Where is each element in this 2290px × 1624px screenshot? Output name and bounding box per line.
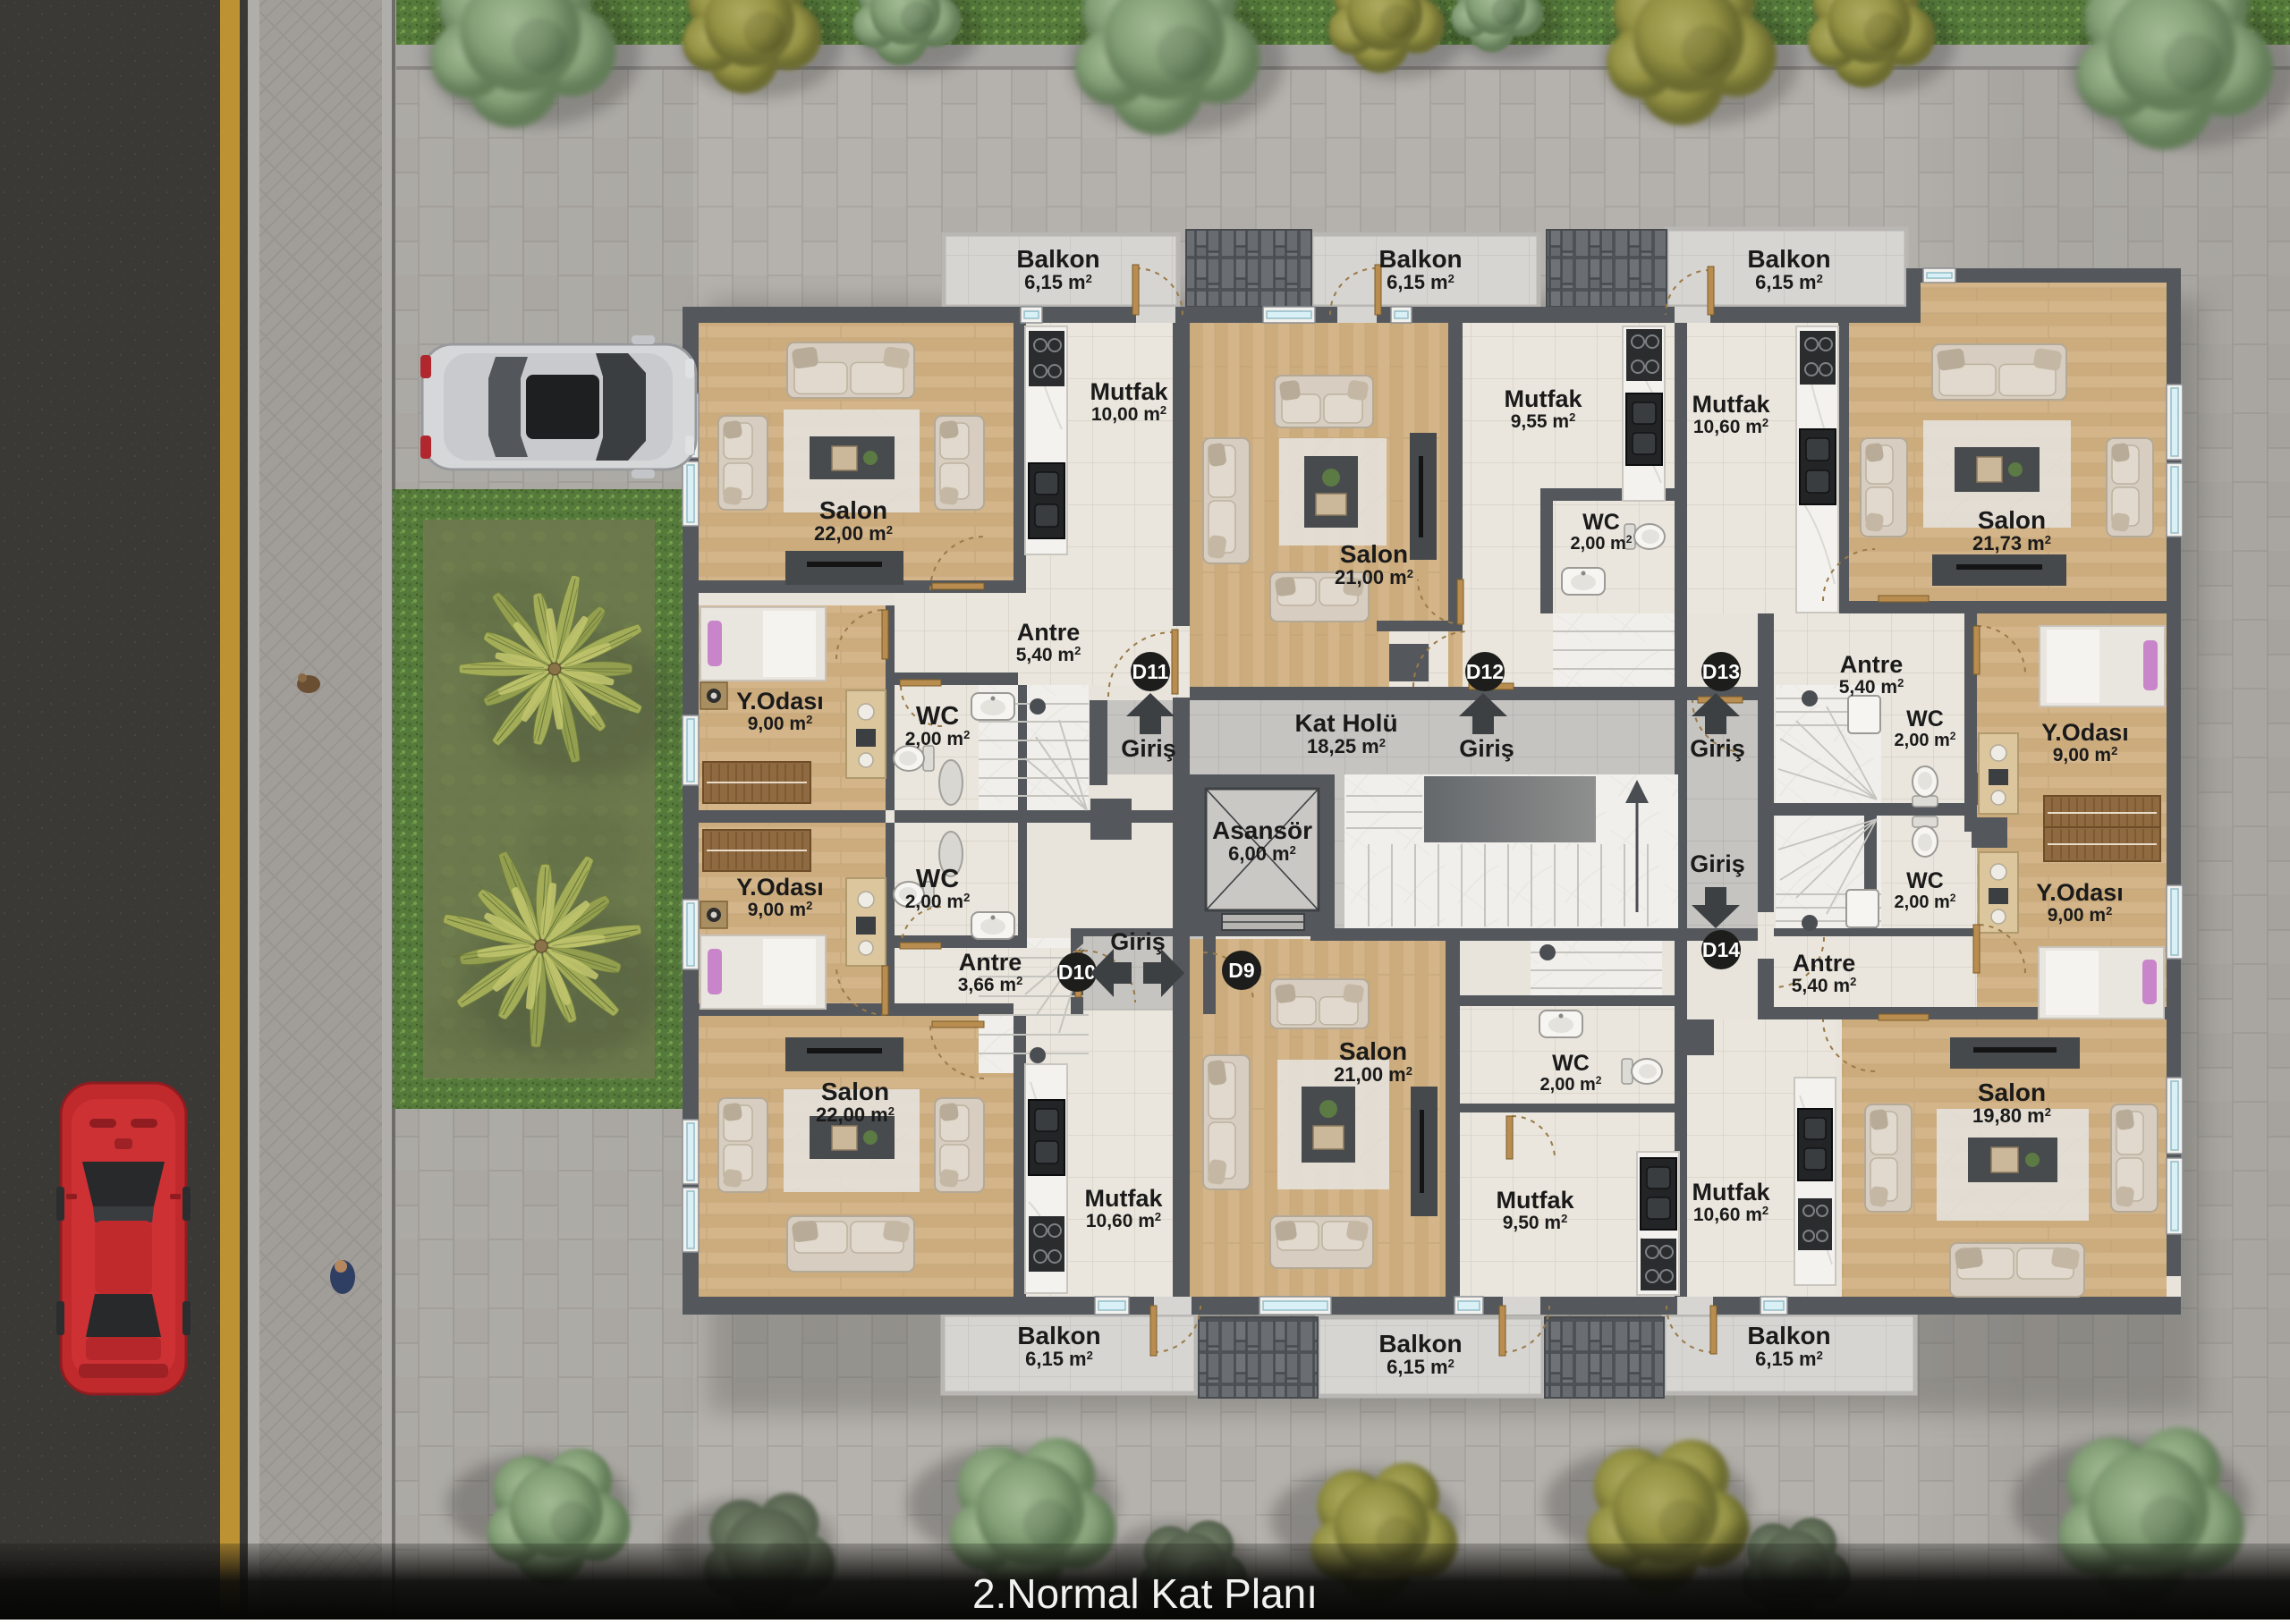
svg-text:21,73 m2: 21,73 m2 [1972,532,2051,554]
svg-text:Mutfak: Mutfak [1085,1185,1164,1212]
svg-text:Giriş: Giriş [1690,735,1745,762]
svg-text:3,66 m2: 3,66 m2 [958,974,1023,995]
svg-text:D10: D10 [1058,960,1096,984]
svg-text:2,00 m2: 2,00 m2 [905,728,971,749]
svg-text:10,00 m2: 10,00 m2 [1091,403,1166,425]
svg-text:Salon: Salon [821,1078,889,1105]
svg-text:Mutfak: Mutfak [1692,1179,1771,1205]
svg-text:Y.Odası: Y.Odası [2041,719,2129,746]
svg-text:Salon: Salon [1978,1078,2046,1106]
svg-text:D9: D9 [1228,959,1254,982]
svg-text:Salon: Salon [1340,540,1408,568]
svg-text:Antre: Antre [1793,950,1856,977]
svg-text:Y.Odası: Y.Odası [736,688,824,715]
svg-text:Balkon: Balkon [1747,245,1830,273]
svg-text:WC: WC [916,702,959,731]
svg-text:9,50 m2: 9,50 m2 [1503,1212,1568,1233]
svg-text:19,80 m2: 19,80 m2 [1972,1104,2051,1127]
svg-text:WC: WC [1906,706,1944,732]
svg-text:Kat Holü: Kat Holü [1294,709,1397,737]
svg-text:Giriş: Giriş [1459,735,1514,762]
svg-text:5,40 m2: 5,40 m2 [1839,676,1904,698]
svg-text:5,40 m2: 5,40 m2 [1792,975,1857,996]
svg-text:Mutfak: Mutfak [1497,1187,1575,1214]
svg-text:2,00 m2: 2,00 m2 [1540,1074,1602,1095]
svg-text:Mutfak: Mutfak [1692,391,1771,418]
svg-text:Salon: Salon [1339,1037,1407,1065]
svg-text:Balkon: Balkon [1017,1322,1100,1349]
svg-text:D14: D14 [1702,938,1740,961]
svg-text:2,00 m2: 2,00 m2 [1895,730,1956,750]
svg-text:2.Normal Kat Planı: 2.Normal Kat Planı [972,1570,1318,1617]
svg-text:9,55 m2: 9,55 m2 [1511,410,1576,432]
svg-text:Balkon: Balkon [1378,245,1462,273]
svg-text:Giriş: Giriş [1690,850,1745,877]
svg-text:9,00 m2: 9,00 m2 [748,713,813,734]
svg-text:5,40 m2: 5,40 m2 [1016,644,1081,665]
svg-text:Balkon: Balkon [1747,1322,1830,1349]
svg-text:Y.Odası: Y.Odası [736,874,824,901]
svg-text:D11: D11 [1132,660,1169,683]
svg-text:21,00 m2: 21,00 m2 [1334,1063,1412,1086]
svg-text:6,00 m2: 6,00 m2 [1228,842,1296,865]
svg-text:Mutfak: Mutfak [1505,385,1583,412]
svg-text:D12: D12 [1466,660,1504,683]
svg-text:WC: WC [916,865,959,893]
svg-text:6,15 m2: 6,15 m2 [1755,271,1823,293]
svg-text:Y.Odası: Y.Odası [2036,879,2124,906]
svg-text:Salon: Salon [1978,506,2046,534]
svg-text:10,60 m2: 10,60 m2 [1693,416,1768,437]
svg-text:21,00 m2: 21,00 m2 [1335,566,1413,588]
svg-text:WC: WC [1906,868,1944,893]
svg-text:6,15 m2: 6,15 m2 [1025,1348,1093,1370]
svg-text:2,00 m2: 2,00 m2 [1895,892,1956,912]
svg-text:9,00 m2: 9,00 m2 [2053,744,2118,765]
svg-text:10,60 m2: 10,60 m2 [1086,1210,1161,1231]
svg-text:Salon: Salon [819,496,887,524]
svg-text:WC: WC [1552,1051,1590,1076]
svg-text:Giriş: Giriş [1121,735,1176,762]
svg-text:2,00 m2: 2,00 m2 [905,891,971,912]
svg-text:6,15 m2: 6,15 m2 [1387,1356,1455,1378]
svg-text:6,15 m2: 6,15 m2 [1387,271,1455,293]
svg-text:Asansör: Asansör [1212,816,1312,844]
svg-text:Balkon: Balkon [1378,1330,1462,1358]
svg-text:9,00 m2: 9,00 m2 [748,899,813,920]
svg-text:10,60 m2: 10,60 m2 [1693,1204,1768,1225]
svg-text:Mutfak: Mutfak [1090,378,1169,405]
svg-text:Antre: Antre [1840,651,1904,678]
svg-text:2,00 m2: 2,00 m2 [1571,533,1633,554]
svg-text:6,15 m2: 6,15 m2 [1755,1348,1823,1370]
svg-text:Antre: Antre [1017,619,1081,646]
svg-text:D13: D13 [1702,660,1740,683]
svg-text:Antre: Antre [959,949,1022,976]
svg-text:9,00 m2: 9,00 m2 [2048,904,2113,926]
svg-text:WC: WC [1582,510,1620,535]
svg-text:22,00 m2: 22,00 m2 [816,1104,895,1126]
svg-text:Giriş: Giriş [1110,928,1166,955]
svg-text:Balkon: Balkon [1016,245,1099,273]
svg-text:22,00 m2: 22,00 m2 [814,522,893,545]
svg-text:18,25 m2: 18,25 m2 [1307,735,1386,757]
svg-text:6,15 m2: 6,15 m2 [1024,271,1092,293]
